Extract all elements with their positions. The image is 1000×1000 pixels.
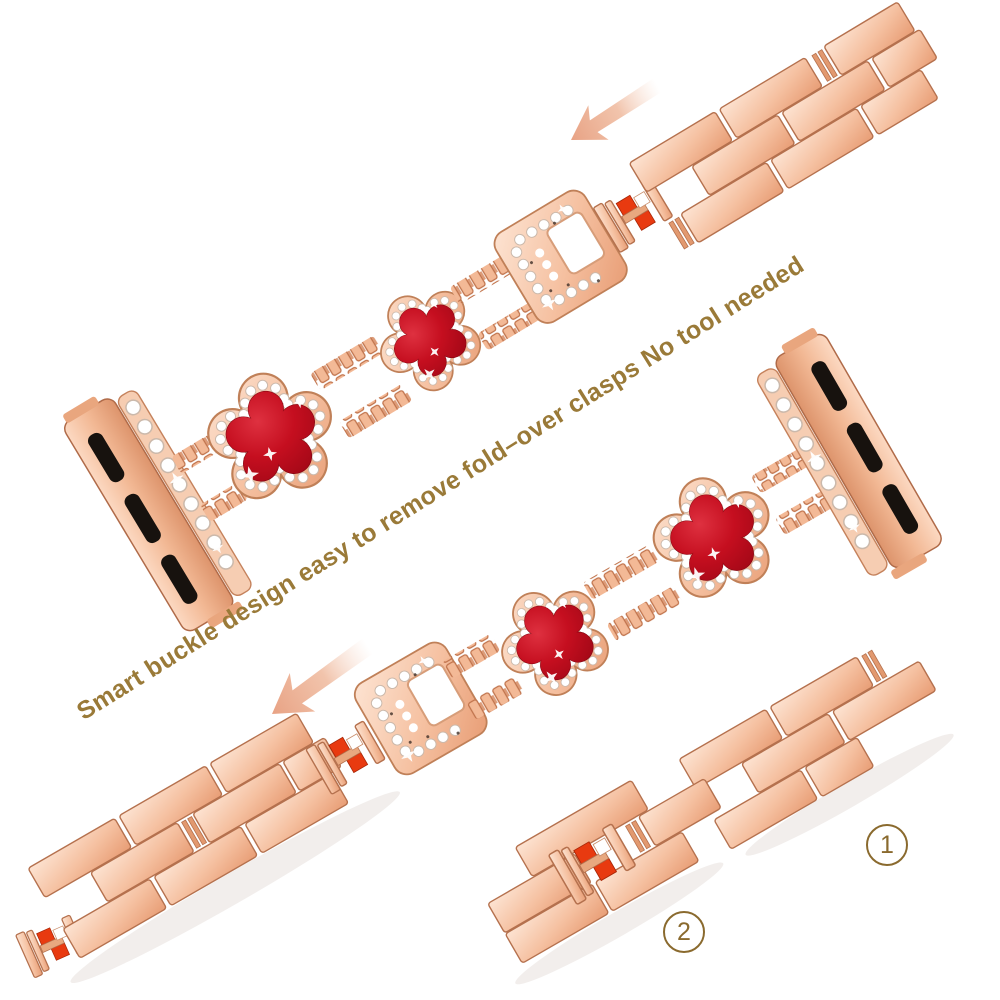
step-1-number: 1	[880, 831, 894, 860]
watch-band-product-illustration	[0, 0, 1000, 1000]
step-2-badge: 2	[663, 911, 705, 953]
watch-lug-adapter-right	[748, 324, 949, 590]
detached-links-step-1	[679, 631, 966, 870]
arrow-down-left-icon	[560, 71, 669, 155]
product-photo: Smart buckle design easy to remove fold–…	[0, 0, 1000, 1000]
detached-links-step-2	[456, 748, 751, 994]
box-chain	[607, 586, 684, 642]
metal-links	[629, 0, 955, 252]
step-2-number: 2	[677, 918, 691, 947]
step-1-badge: 1	[866, 824, 908, 866]
box-chain	[310, 335, 384, 390]
box-chain	[583, 544, 660, 600]
box-chain	[339, 383, 413, 438]
